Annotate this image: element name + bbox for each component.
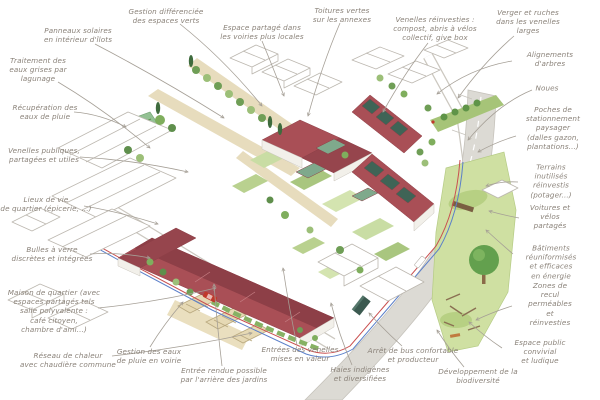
beehive <box>431 120 434 123</box>
neighborhood-illustration <box>0 0 600 400</box>
diagram-canvas: Gestion différenciée des espaces vertsPa… <box>0 0 600 400</box>
pedestrian-crossing <box>325 284 355 313</box>
